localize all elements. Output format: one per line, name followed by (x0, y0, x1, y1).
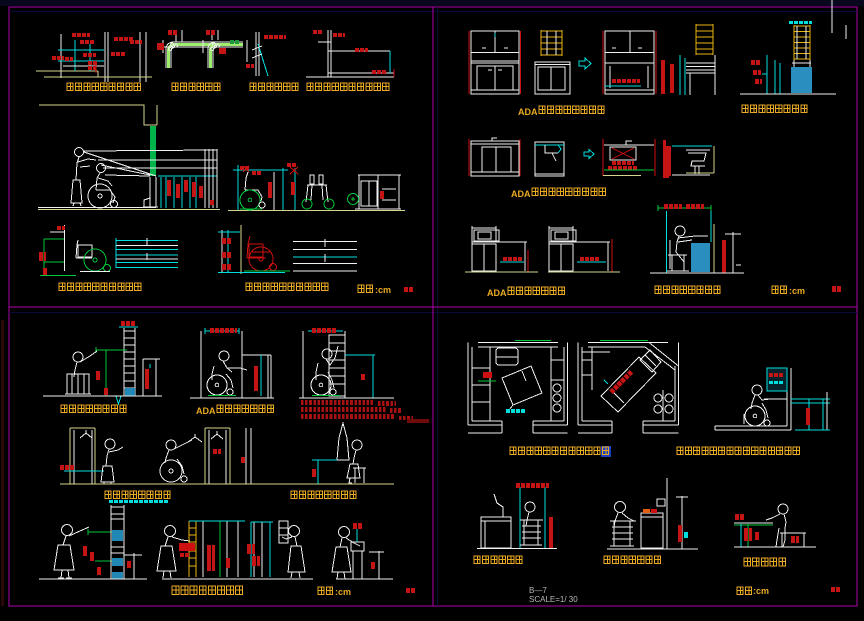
svg-text::cm: :cm (789, 286, 805, 296)
svg-text:ADA: ADA (487, 288, 507, 298)
svg-text:ADA: ADA (518, 107, 538, 117)
svg-text:SCALE=1/ 30: SCALE=1/ 30 (529, 595, 578, 604)
svg-text:ADA: ADA (196, 406, 216, 416)
svg-text::cm: :cm (753, 586, 769, 596)
svg-text:B—7: B—7 (529, 586, 547, 595)
svg-text::cm: :cm (375, 285, 391, 295)
svg-text:ADA: ADA (511, 189, 531, 199)
svg-text::cm: :cm (335, 587, 351, 597)
